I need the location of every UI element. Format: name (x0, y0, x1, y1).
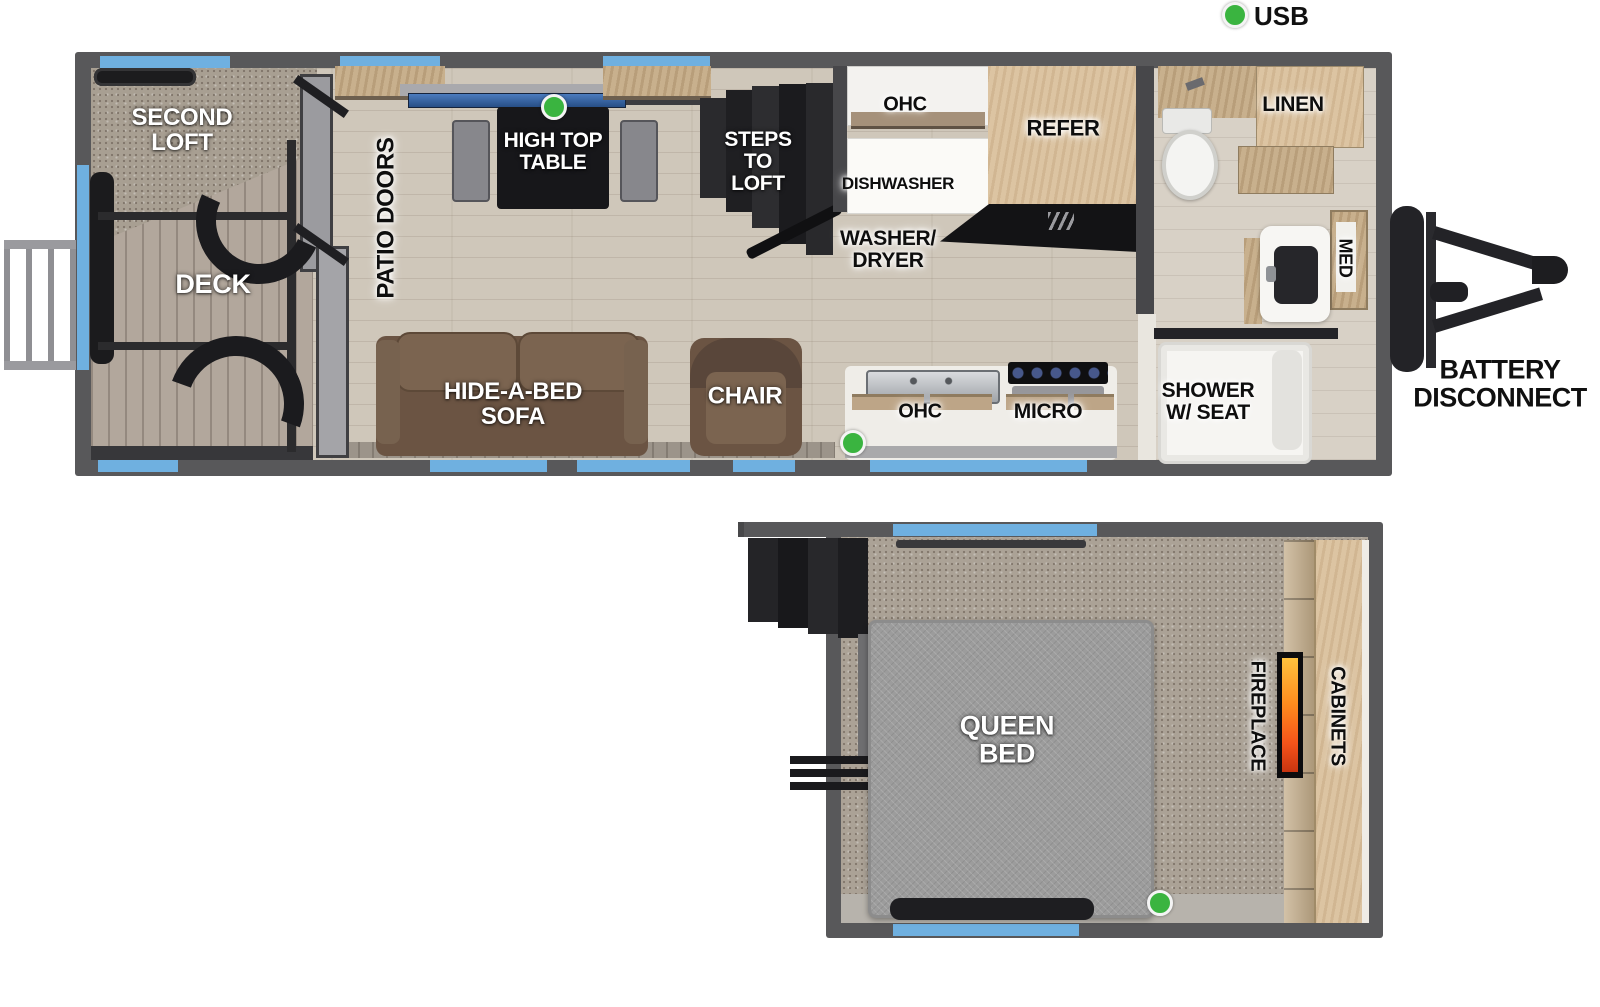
floorplan-canvas: USB (0, 0, 1600, 1007)
sofa-label: HIDE-A-BED SOFA (444, 379, 582, 429)
bench-right (620, 120, 658, 202)
ohc-top-label: OHC (883, 95, 927, 116)
window-bottom-3 (577, 460, 690, 472)
vanity-faucet (1266, 266, 1276, 282)
deck-door-accent (77, 165, 89, 370)
kitchen-ledge (845, 446, 1117, 458)
window-bottom-2 (430, 460, 547, 472)
shower-seat (1272, 350, 1302, 450)
linen-drawers (1238, 146, 1334, 194)
window-top-1 (100, 56, 230, 68)
ohc-bottom-label: OHC (898, 402, 942, 423)
living-ohc-right (603, 66, 711, 100)
shower-label: SHOWER W/ SEAT (1162, 380, 1255, 424)
deck-label: DECK (175, 270, 250, 298)
loft-wall-endcap (738, 522, 744, 537)
propane-tank (1390, 206, 1424, 372)
micro-label: MICRO (1014, 401, 1083, 423)
loft-window-top (893, 524, 1097, 536)
dishwasher-label: DISHWASHER (842, 175, 954, 193)
linen-label: LINEN (1262, 94, 1324, 116)
vanity-sink (1274, 246, 1318, 304)
window-bottom-5 (870, 460, 1087, 472)
queen-bed-label: QUEEN BED (960, 712, 1055, 769)
toilet (1162, 130, 1218, 200)
refer-label: REFER (1026, 116, 1099, 139)
loft-stair-4 (838, 538, 868, 638)
loft-railing-2 (790, 769, 874, 777)
tv-screen (408, 93, 626, 108)
exterior-ladder (4, 240, 76, 370)
loft-stair-3 (808, 538, 838, 634)
loft-top-wall-extension (738, 522, 838, 537)
usb-legend-label: USB (1254, 1, 1309, 32)
shower-glass (1154, 328, 1338, 339)
second-loft-label: SECOND LOFT (132, 105, 233, 155)
loft-top-rail (896, 540, 1086, 548)
hitch-coupler (1532, 256, 1568, 284)
faucet-icon (1048, 212, 1074, 230)
bath-divider-wall (1136, 66, 1154, 314)
bed-footboard (890, 898, 1094, 920)
loft-cabinet-trim (1362, 540, 1369, 923)
loft-stair-2 (778, 538, 808, 628)
med-label: MED (1336, 238, 1355, 277)
loft-stair-1 (748, 538, 778, 622)
cooktop (1008, 362, 1108, 384)
queen-bed (868, 620, 1154, 918)
steps-to-loft-label: STEPS TO LOFT (724, 129, 791, 195)
patio-doors-label: PATIO DOORS (373, 137, 398, 298)
usb-indicator-kitchen (840, 430, 866, 456)
usb-indicator-loft (1147, 890, 1173, 916)
washer-dryer-label: WASHER/ DRYER (840, 228, 936, 272)
loft-railing-3 (790, 782, 874, 790)
loft-window-bottom (893, 924, 1079, 936)
patio-door-panel-2 (316, 246, 349, 458)
roof-vent (94, 68, 196, 86)
sofa-arm-left (376, 340, 400, 444)
bench-left (452, 120, 490, 202)
battery-disconnect-label: BATTERY DISCONNECT (1413, 356, 1587, 413)
window-bottom-4 (733, 460, 795, 472)
fireplace-flame-icon (1282, 658, 1298, 772)
sofa-arm-right (624, 340, 648, 444)
high-top-table-label: HIGH TOP TABLE (504, 130, 603, 174)
tongue-handle (1430, 282, 1468, 302)
loft-step-1 (700, 98, 726, 198)
cabinets-label: CABINETS (1327, 666, 1348, 766)
loft-railing-1 (790, 756, 874, 764)
usb-legend-icon (1222, 2, 1248, 28)
fireplace-label: FIREPLACE (1247, 661, 1268, 772)
usb-indicator-table (541, 94, 567, 120)
window-bottom-1 (98, 460, 178, 472)
aframe-bar-top (1432, 226, 1543, 271)
outdoor-tv (90, 172, 114, 364)
chair-label: CHAIR (708, 383, 783, 408)
